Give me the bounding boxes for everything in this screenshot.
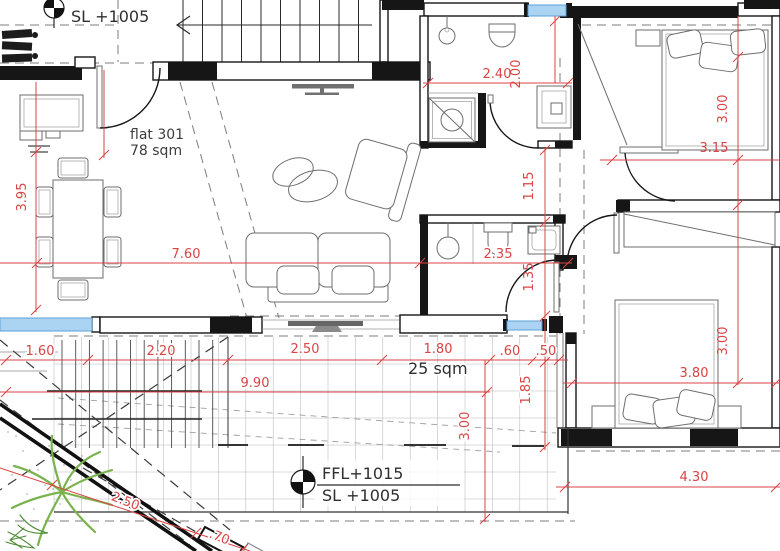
dim-bedroom1-width: 3.15 (700, 141, 729, 156)
entry-window (528, 5, 566, 16)
dim-bath-mid-width: 2.35 (484, 247, 513, 262)
speckle-dot (44, 484, 46, 486)
dim-bedroom2-overall: 4.30 (680, 470, 709, 485)
pillow (730, 28, 766, 55)
living-window (0, 318, 92, 331)
speckle-dot (37, 469, 39, 471)
dim-terrace-seg2: 2.20 (147, 344, 176, 359)
dim-entry-depth: 2.00 (509, 60, 524, 89)
speckle-dot (63, 464, 65, 466)
upper-landing-level-label: SL +1005 (71, 7, 149, 26)
bathroom-window (507, 321, 542, 330)
bathroom2-fixtures (437, 223, 560, 312)
dim-terrace-seg1: 1.60 (26, 344, 55, 359)
dim-terrace-seg3: 2.50 (291, 342, 320, 357)
parapet-wall (0, 418, 196, 551)
dim-hall-segment-b: 1.35 (522, 263, 537, 292)
dim-terrace-depth: 3.00 (458, 412, 473, 441)
parapet-wall (0, 404, 212, 551)
stair-treads (183, 0, 359, 62)
dim-bedroom1-depth: 3.00 (716, 95, 731, 124)
speckle-dot (52, 488, 54, 490)
entry-closet (537, 86, 571, 128)
plant (6, 431, 112, 548)
terrace-sl-label: SL +1005 (322, 486, 400, 505)
floor-plan-page: SL +1005 FFL+1015 SL +1005 flat 301 78 s… (0, 0, 780, 551)
dim-terrace-seg6: .50 (536, 344, 557, 359)
dim-bedroom2-width: 3.80 (680, 366, 709, 381)
speckle-dot (15, 435, 17, 437)
dim-terrace-seg4: 1.80 (424, 342, 453, 357)
kitchen-door (97, 66, 160, 128)
toilet (484, 223, 512, 232)
dim-living-width: 7.60 (172, 247, 201, 262)
dim-bath-top-width: 2.40 (483, 67, 512, 82)
level-marker-top: SL +1005 (44, 0, 149, 28)
upper-staircase (177, 0, 388, 62)
speckle-dot (22, 450, 24, 452)
speckle-dot (81, 455, 83, 457)
survey-marker-icon (54, 8, 64, 18)
sofa (246, 233, 390, 302)
washing-machine (528, 226, 560, 254)
bathroom1-door (490, 100, 538, 148)
speckle-dot (59, 503, 61, 505)
toilet (489, 24, 515, 32)
armchair (341, 129, 422, 223)
bedroom1-bed (636, 28, 768, 150)
dim-bedroom2-depth: 3.00 (716, 327, 731, 356)
dim-terrace-width: 9.90 (241, 376, 270, 391)
speckle-dot (33, 508, 35, 510)
shower (429, 98, 475, 142)
dim-hall-segment-a: 1.15 (522, 172, 537, 201)
tv-unit-top (292, 84, 354, 95)
terrace-ffl-label: FFL+1015 (322, 464, 403, 483)
bedroom2-bed (592, 300, 741, 429)
floor-plan-drawing: SL +1005 FFL+1015 SL +1005 flat 301 78 s… (0, 0, 780, 551)
survey-marker-icon (291, 482, 303, 494)
kitchen-counter (20, 95, 83, 152)
speckle-dot (74, 440, 76, 442)
balcony-loungers (2, 29, 38, 63)
dining-table (36, 158, 121, 300)
terrace-area-label: 25 sqm (408, 359, 468, 378)
dim-stair-run: 2.50 (109, 490, 141, 514)
survey-marker-icon (44, 0, 54, 8)
speckle-dot (48, 445, 50, 447)
stair-treads (62, 340, 213, 448)
dim-terrace-step: 1.85 (519, 376, 534, 405)
speckle-dot (7, 431, 9, 433)
speckle-dot (11, 474, 13, 476)
flat-name-label: flat 301 (130, 127, 184, 143)
speckle-dot (70, 479, 72, 481)
speckle-dot (26, 493, 28, 495)
flat-area-label: 78 sqm (130, 143, 182, 159)
rug (269, 153, 341, 207)
tv-unit-bottom (288, 321, 363, 332)
level-marker-terrace: FFL+1015 SL +1005 (291, 456, 464, 508)
dim-living-depth: 3.95 (15, 183, 30, 212)
dim-terrace-seg5: .60 (500, 344, 521, 359)
